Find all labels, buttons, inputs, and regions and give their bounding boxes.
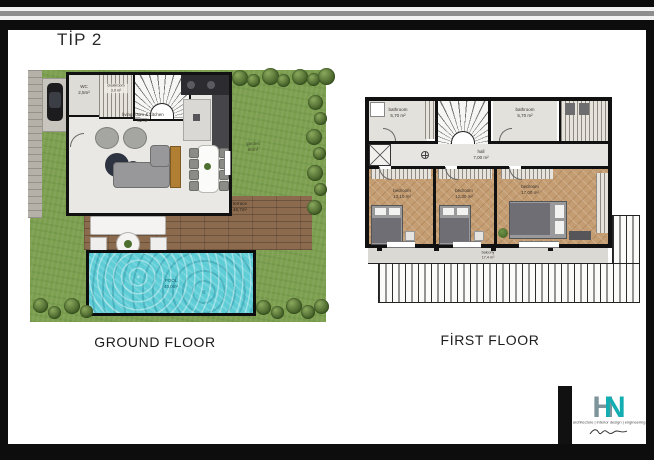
level-marker-icon bbox=[421, 151, 429, 159]
garden-label: garden60m² bbox=[240, 142, 267, 153]
bedroom-right-label: bedroom17,00 m² bbox=[513, 185, 548, 196]
car-roof bbox=[49, 92, 61, 108]
logo-divider bbox=[558, 386, 572, 444]
bathroom-left-label: bathroom5,70 m² bbox=[382, 108, 414, 119]
room-bedroom-left bbox=[369, 169, 433, 244]
closet-box bbox=[565, 103, 575, 115]
pergola-hatch-right bbox=[612, 215, 640, 265]
bush-icon bbox=[314, 299, 329, 314]
pool: POOL40,0m² bbox=[86, 250, 256, 316]
bush-icon bbox=[307, 165, 323, 181]
presentation-sheet: TİP 2 WC2,5m² cloakroom3,0 m² bbox=[0, 0, 654, 460]
house-first: bathroom5,70 m² bathroom5,70 m² hall7,00… bbox=[365, 97, 612, 248]
bush-icon bbox=[318, 68, 335, 85]
room-bedroom-right bbox=[497, 169, 608, 244]
dining-chair bbox=[189, 170, 199, 180]
closet bbox=[559, 101, 608, 141]
room-bedroom-middle bbox=[436, 169, 494, 244]
bush-icon bbox=[292, 69, 308, 85]
first-floor-caption: FİRST FLOOR bbox=[410, 332, 570, 348]
hob-icon bbox=[207, 81, 215, 89]
window bbox=[519, 241, 559, 248]
pergola-hatch-bottom bbox=[378, 263, 640, 303]
signature-icon bbox=[587, 426, 631, 437]
bush-icon bbox=[314, 183, 327, 196]
bush-icon bbox=[256, 300, 271, 315]
bush-icon bbox=[314, 112, 327, 125]
bed bbox=[371, 205, 403, 245]
armchair bbox=[123, 127, 147, 149]
bush-icon bbox=[277, 74, 290, 87]
page-title: TİP 2 bbox=[57, 30, 102, 50]
hall-label: hall7,00 m² bbox=[466, 150, 496, 161]
first-floor-plan: balcony17,4 m² bathroom5,70 m² bathroom5… bbox=[362, 95, 642, 305]
bed bbox=[439, 205, 471, 245]
balcony-label: balcony17,4 m² bbox=[474, 251, 501, 260]
bush-icon bbox=[64, 298, 80, 314]
armchair bbox=[95, 127, 119, 149]
stone-path bbox=[28, 70, 42, 218]
bush-icon bbox=[48, 306, 61, 319]
logo-tagline: architecture | interior design | enginee… bbox=[573, 421, 646, 425]
closet bbox=[425, 101, 435, 139]
wardrobe-x bbox=[369, 144, 391, 166]
nightstand bbox=[474, 231, 484, 241]
bush-icon bbox=[271, 306, 284, 319]
dining-chair bbox=[189, 148, 199, 158]
bed bbox=[509, 201, 567, 239]
staircase-first bbox=[435, 101, 491, 147]
bush-icon bbox=[80, 305, 93, 318]
bush-icon bbox=[313, 147, 326, 160]
dresser bbox=[569, 231, 591, 240]
kitchen-island bbox=[183, 99, 211, 141]
dining-chair bbox=[189, 159, 199, 169]
outdoor-pouf bbox=[90, 237, 107, 251]
kitchen-counter-top bbox=[181, 75, 229, 95]
wc-label: WC2,5m² bbox=[73, 85, 96, 96]
bush-icon bbox=[308, 95, 323, 110]
bush-icon bbox=[286, 298, 302, 314]
window bbox=[224, 151, 231, 175]
firm-logo-block: HN architecture | interior design | engi… bbox=[572, 388, 646, 444]
pool-label: POOL40,0m² bbox=[156, 279, 186, 290]
bush-icon bbox=[301, 305, 315, 319]
bush-icon bbox=[232, 70, 248, 86]
window bbox=[453, 241, 481, 248]
bush-icon bbox=[307, 200, 322, 215]
door-arc bbox=[70, 133, 84, 147]
bush-icon bbox=[306, 129, 322, 145]
ground-floor-plan: WC2,5m² cloakroom3,0 m² bbox=[28, 58, 328, 330]
dining-chair bbox=[219, 181, 229, 191]
hn-logo-icon: HN bbox=[592, 396, 625, 420]
outdoor-pouf bbox=[150, 237, 167, 251]
dining-chair bbox=[189, 181, 199, 191]
car-icon bbox=[47, 83, 63, 121]
balcony: balcony17,4 m² bbox=[368, 248, 608, 264]
terrace-label: terrace48,7m² bbox=[227, 202, 254, 213]
closet bbox=[596, 173, 608, 233]
sofa-chaise bbox=[150, 145, 170, 167]
bush-icon bbox=[33, 298, 48, 313]
sink-icon bbox=[187, 81, 195, 89]
table-plant-icon bbox=[204, 163, 211, 170]
bathroom-right-label: bathroom5,70 m² bbox=[507, 108, 543, 119]
nightstand bbox=[405, 231, 415, 241]
closet-box bbox=[579, 103, 589, 115]
bedroom-left-label: bedroom13,10 m² bbox=[386, 189, 418, 200]
ground-floor-caption: GROUND FLOOR bbox=[75, 334, 235, 350]
bush-icon bbox=[247, 74, 260, 87]
bedroom-middle-label: bedroom12,30 m² bbox=[448, 189, 480, 200]
top-stripe-white-2 bbox=[0, 16, 654, 20]
house-ground: WC2,5m² cloakroom3,0 m² bbox=[66, 72, 232, 216]
window bbox=[387, 241, 415, 248]
dining-table bbox=[197, 145, 219, 193]
plant-icon bbox=[498, 228, 508, 238]
cloakroom-label: cloakroom3,0 m² bbox=[104, 84, 128, 93]
sideboard bbox=[170, 146, 181, 188]
living-room-label: living room & kitchen42 m² bbox=[116, 113, 170, 124]
island-sink-icon bbox=[193, 114, 200, 121]
plant-icon bbox=[124, 240, 132, 248]
